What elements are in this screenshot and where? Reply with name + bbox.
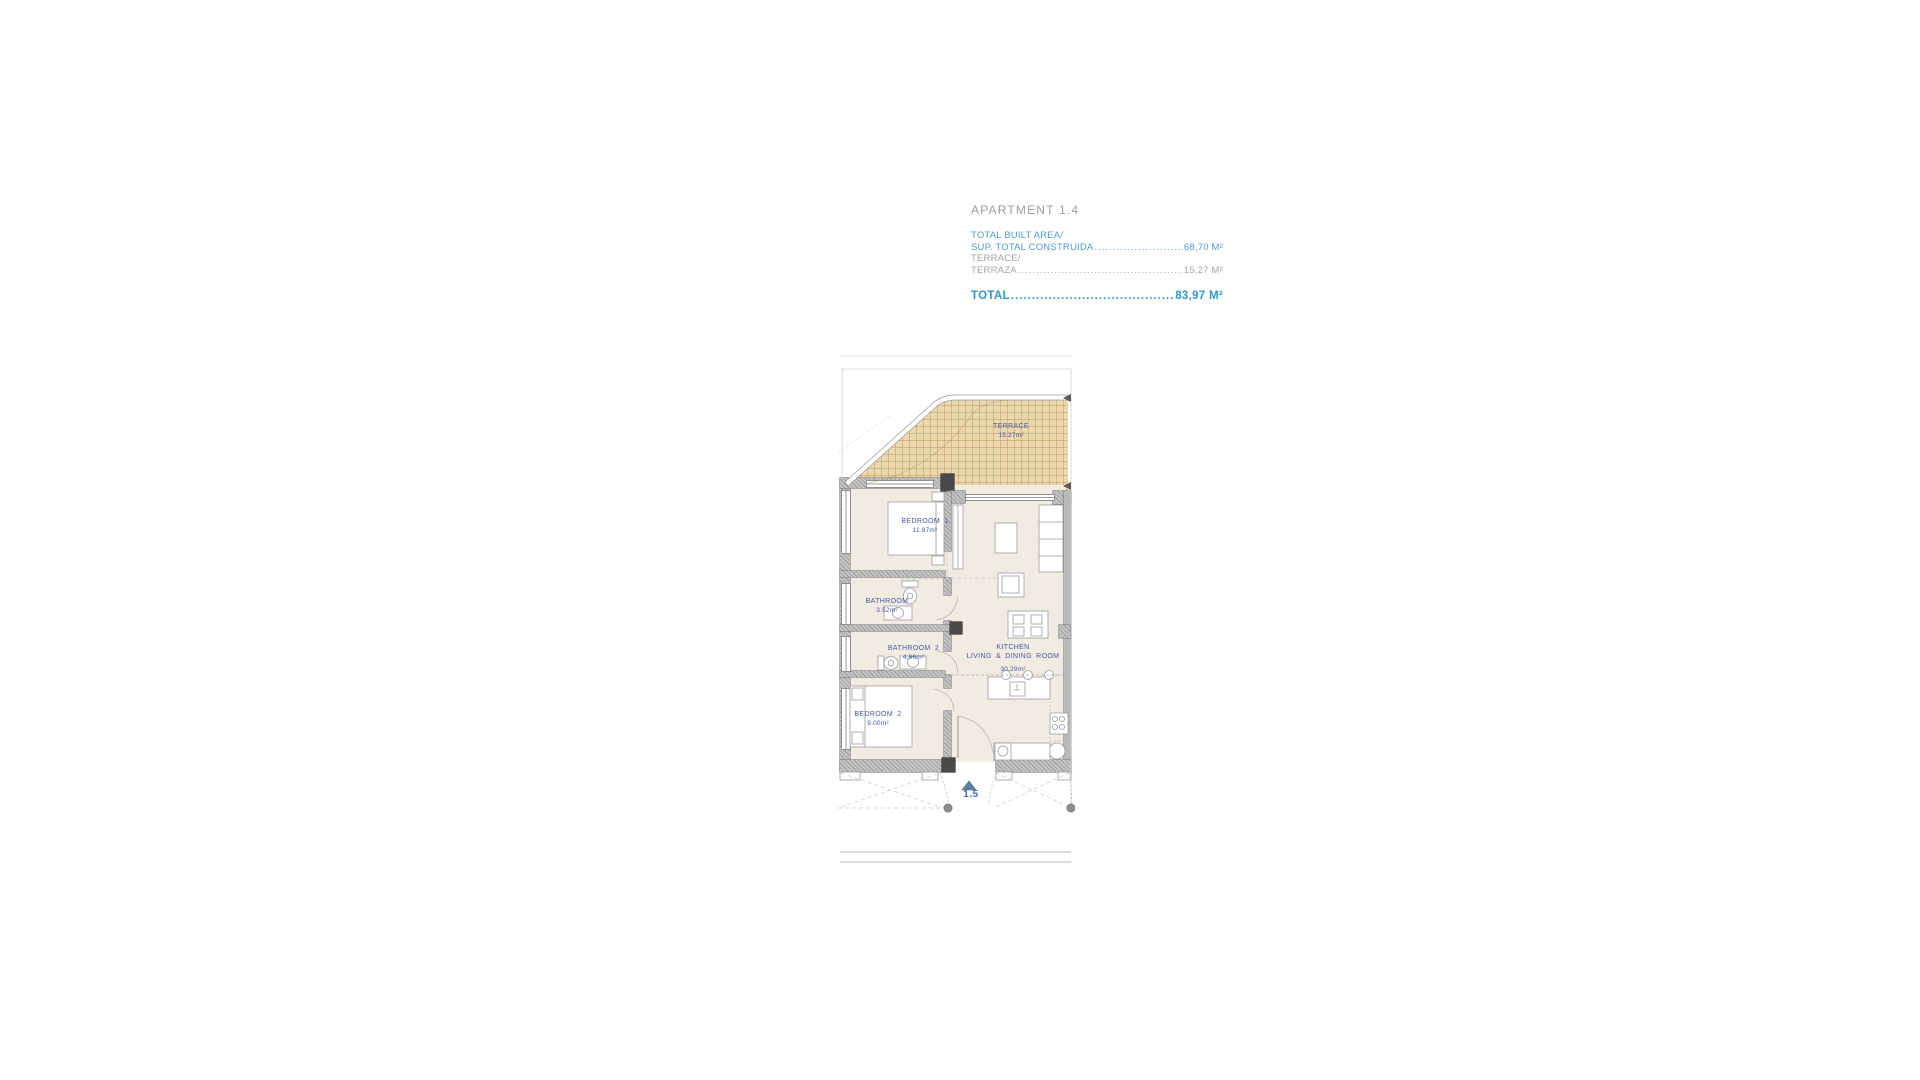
built-area-value: 68,70 M² xyxy=(1184,242,1223,254)
bathroom2-name: BATHROOM 2 xyxy=(888,645,939,652)
total-label: TOTAL xyxy=(971,290,1010,302)
bedroom2-name: BEDROOM 2 xyxy=(854,711,901,718)
bathroom1-area: 3.52m² xyxy=(847,606,927,615)
site-diagonal-dashed xyxy=(838,416,890,452)
bedroom2-room-label: BEDROOM 2 9.00m² xyxy=(838,710,918,728)
terrace-name: TERRACE xyxy=(993,423,1029,430)
column-marker-icon xyxy=(944,804,952,812)
bedroom1-room-label: BEDROOM 1 11.87m² xyxy=(885,517,965,535)
total-line: TOTAL ..................................… xyxy=(971,290,1223,302)
door-arc-bedroom2 xyxy=(933,689,954,711)
nightstand2-icon xyxy=(932,556,944,565)
kitchen-name-line1: KITCHEN xyxy=(996,644,1029,651)
bathroom1-name: BATHROOM xyxy=(866,598,909,605)
bedroom2-area: 9.00m² xyxy=(838,719,918,728)
page-canvas: APARTMENT 1.4 TOTAL BUILT AREA/ SUP. TOT… xyxy=(0,0,1920,1080)
street-lines xyxy=(840,852,1071,862)
adjacent-unit-marker: 1.5 xyxy=(951,789,991,800)
dining-chair-icon xyxy=(1031,627,1042,636)
terrace-line: TERRAZA ................................… xyxy=(971,265,1223,277)
bathroom2-area: 4.66m² xyxy=(866,653,961,662)
apartment-summary: APARTMENT 1.4 TOTAL BUILT AREA/ SUP. TOT… xyxy=(971,203,1223,302)
hob-icon xyxy=(1050,713,1068,734)
round-fixture-icon xyxy=(1049,743,1065,759)
terrace-label-2: TERRAZA xyxy=(971,265,1017,277)
toilet1-tank-icon xyxy=(902,581,918,587)
door-arc-entrance xyxy=(958,716,994,757)
built-area-line: SUP. TOTAL CONSTRUIDA ..................… xyxy=(971,242,1223,254)
apartment-title: APARTMENT 1.4 xyxy=(971,203,1223,217)
kitchen-name-line2: LIVING & DINING ROOM xyxy=(967,653,1060,660)
hob-burner-icon xyxy=(1052,716,1057,721)
bathroom2-room-label: BATHROOM 2 4.66m² xyxy=(866,644,961,662)
terrace-room-label: TERRACE 15.27m² xyxy=(971,422,1051,440)
appliance-drum-icon xyxy=(998,746,1008,756)
sofa-icon xyxy=(1039,505,1063,572)
terrace-area: 15.27m² xyxy=(971,431,1051,440)
total-value: 83,97 M² xyxy=(1175,290,1223,302)
dining-chair-icon xyxy=(1013,615,1024,624)
floor-plan: TERRACE 15.27m² BEDROOM 1 11.87m² BATHRO… xyxy=(838,355,1075,870)
bed2-pillow-icon xyxy=(852,688,863,700)
built-area-label-2: SUP. TOTAL CONSTRUIDA xyxy=(971,242,1093,254)
bed2-pillow-icon xyxy=(852,732,863,744)
hob-burner-icon xyxy=(1052,724,1057,729)
built-area-leader-dots: ........................................… xyxy=(1094,242,1182,254)
dashed-curve-left xyxy=(940,773,948,804)
bathroom1-room-label: BATHROOM 3.52m² xyxy=(847,597,927,615)
kitchen-room-label: KITCHEN LIVING & DINING ROOM 30.29m² xyxy=(961,643,1065,674)
bedroom1-area: 11.87m² xyxy=(885,526,965,535)
terrace-railing xyxy=(845,395,1068,486)
coffee-table-icon xyxy=(995,523,1017,553)
terrace-leader-dots: ........................................… xyxy=(1018,265,1183,277)
nightstand1-icon xyxy=(932,492,944,501)
total-leader-dots: ........................................… xyxy=(1011,290,1174,302)
pillar-cap-icon xyxy=(922,772,938,780)
armchair-seat-icon xyxy=(1002,576,1019,593)
pillar-cap-icon xyxy=(996,772,1012,780)
railing-post-bottom-icon xyxy=(1063,482,1071,490)
column-marker-icon xyxy=(1067,804,1075,812)
terrace-value: 15,27 M² xyxy=(1184,265,1223,277)
hob-burner-icon xyxy=(1059,724,1064,729)
kitchen-sink-icon xyxy=(1010,682,1025,696)
built-area-label: TOTAL BUILT AREA/ xyxy=(971,230,1223,242)
hob-burner-icon xyxy=(1059,716,1064,721)
kitchen-area: 30.29m² xyxy=(961,665,1065,674)
terrace-label: TERRACE/ xyxy=(971,253,1223,265)
dining-chair-icon xyxy=(1013,627,1024,636)
dining-chair-icon xyxy=(1031,615,1042,624)
bedroom1-name: BEDROOM 1 xyxy=(901,518,948,525)
door-arc-bathroom1 xyxy=(936,597,958,620)
